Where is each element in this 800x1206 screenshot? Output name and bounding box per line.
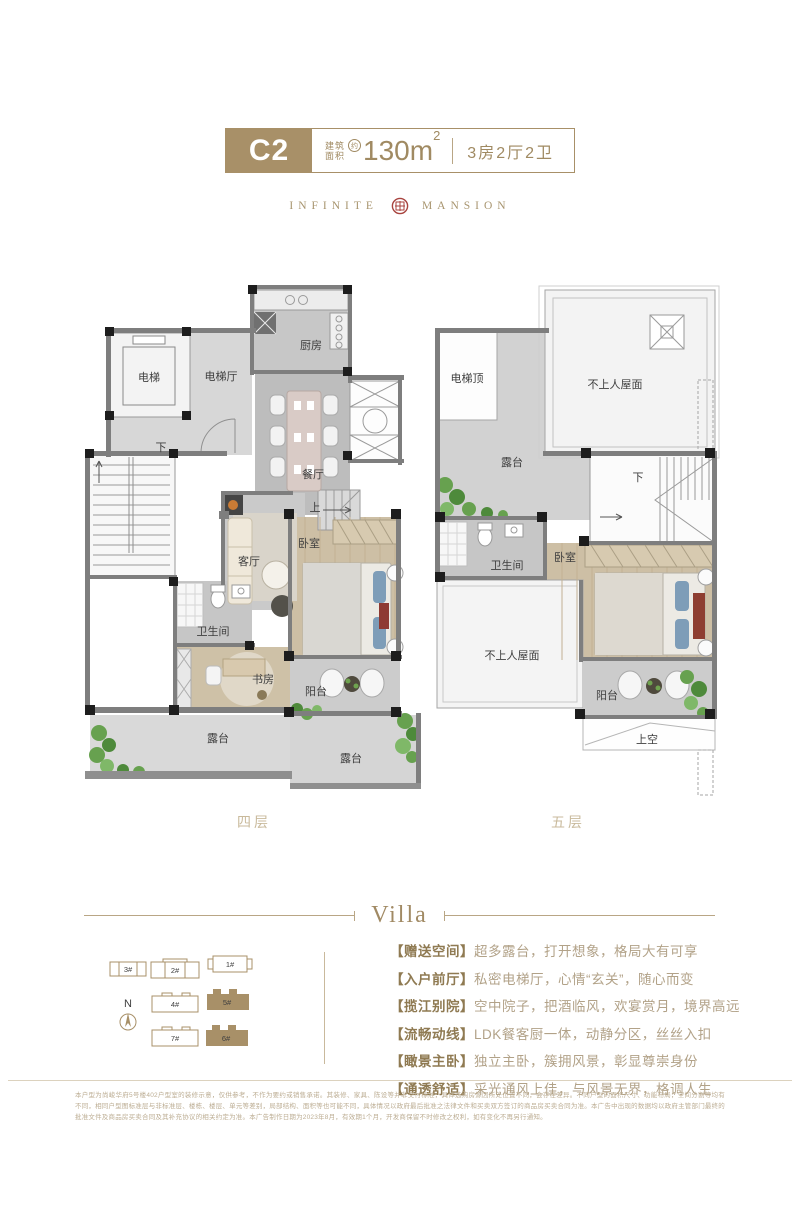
brand-left-word: INFINITE <box>289 200 378 212</box>
feature-desc: 空中院子，把酒临风，欢宴赏月，境界高远 <box>474 995 740 1015</box>
feature-item: 【赠送空间】超多露台，打开想象，格局大有可享 <box>390 940 690 960</box>
feature-desc: 超多露台，打开想象，格局大有可享 <box>474 940 698 960</box>
caption-fourth-floor: 四层 <box>224 812 284 832</box>
building-4-label: 4# <box>171 1000 180 1009</box>
feature-label: 【揽江别院】 <box>390 995 474 1015</box>
room-label-balcony: 阳台 <box>305 684 327 698</box>
room-label-terrace-5f: 露台 <box>501 455 523 469</box>
elevator-door <box>133 336 165 344</box>
flyer-page: C2 建筑 面积 约 130m2 3房2厅2卫 INFINITE MANSION <box>0 0 800 1206</box>
room-label-terrace-right: 露台 <box>340 751 362 765</box>
villa-heading: Villa <box>84 902 715 929</box>
room-label-roof-lower: 不上人屋面 <box>485 649 540 662</box>
stair-down-label: 下 <box>156 442 167 454</box>
stair-up-label: 上 <box>310 501 321 514</box>
building-3-label: 3# <box>124 965 133 974</box>
feature-item: 【瞰景主卧】独立主卧，簇拥风景，彰显尊崇身份 <box>390 1050 690 1070</box>
room-label-roof-upper: 不上人屋面 <box>588 378 643 391</box>
kitchen-counter <box>254 290 348 310</box>
stair-down-label-5f: 下 <box>633 472 644 484</box>
bed-5f-blanket <box>595 573 663 655</box>
room-label-bath: 卫生间 <box>197 624 230 638</box>
building-1-label: 1# <box>226 960 235 969</box>
pillow-5f <box>675 619 689 649</box>
unit-info: 建筑 面积 约 130m2 3房2厅2卫 <box>312 129 574 172</box>
dashed-annex <box>698 750 713 795</box>
compass-needle <box>125 1013 131 1027</box>
room-label-dining: 餐厅 <box>302 467 324 481</box>
area-value: 130m2 <box>363 135 440 167</box>
room-label-bath-5f: 卫生间 <box>491 558 524 572</box>
room-roof-lower <box>437 580 583 708</box>
feature-desc: LDK餐客厨一体，动静分区，丝丝入扣 <box>474 1023 712 1043</box>
feature-desc: 独立主卧，簇拥风景，彰显尊崇身份 <box>474 1050 698 1070</box>
floorplan-fourth-floor: 电梯 电梯厅 厨房 餐厅 下 上 客厅 卧室 卫生间 书房 阳台 露台 露台 <box>85 285 425 800</box>
north-compass: N <box>120 998 136 1030</box>
feature-item: 【流畅动线】LDK餐客厨一体，动静分区，丝丝入扣 <box>390 1023 690 1043</box>
area-label-top: 建筑 <box>325 141 345 151</box>
room-label-study: 书房 <box>252 673 274 686</box>
header-divider <box>452 138 453 164</box>
villa-line-right <box>445 915 715 916</box>
room-label-kitchen: 厨房 <box>300 339 322 352</box>
closet <box>333 520 398 544</box>
villa-title: Villa <box>355 902 444 929</box>
bottom-rule <box>8 1080 792 1081</box>
area-superscript: 2 <box>433 128 440 143</box>
room-label-elevator: 电梯 <box>138 371 160 384</box>
feature-label: 【流畅动线】 <box>390 1023 474 1043</box>
room-label-balcony-5f: 阳台 <box>596 688 618 702</box>
coffee-table <box>262 561 290 589</box>
feature-label: 【赠送空间】 <box>390 940 474 960</box>
room-label-void: 上空 <box>636 732 658 746</box>
seal-icon <box>391 197 409 215</box>
site-plan: N 3# 2# 1# 4# 5# 7# 6# <box>105 950 255 1055</box>
legal-disclaimer: 本户型为尚峻华府5号楼402户型室的装修示意，仅供参考，不作为要约或销售承诺。其… <box>75 1090 725 1123</box>
bed-blanket <box>303 563 361 655</box>
building-7-label: 7# <box>171 1034 180 1043</box>
feature-item: 【揽江别院】空中院子，把酒临风，欢宴赏月，境界高远 <box>390 995 690 1015</box>
feature-desc: 私密电梯厅，心情“玄关”，随心而变 <box>474 968 694 988</box>
north-label: N <box>124 998 132 1010</box>
bed-runner <box>379 603 389 629</box>
layout-text: 3房2厅2卫 <box>467 139 554 163</box>
unit-code-badge: C2 <box>226 129 312 172</box>
area-label: 建筑 面积 <box>325 141 345 161</box>
room-label-living: 客厅 <box>238 554 260 568</box>
villa-line-left <box>84 915 354 916</box>
section-divider <box>324 952 325 1064</box>
room-label-elevator-top: 电梯顶 <box>451 372 484 385</box>
nightstand-5f <box>698 569 714 585</box>
room-terrace-left <box>90 715 290 772</box>
pillow-5f <box>675 581 689 611</box>
feature-label: 【瞰景主卧】 <box>390 1050 474 1070</box>
brand-line: INFINITE MANSION <box>0 197 800 215</box>
room-label-terrace-left: 露台 <box>207 731 229 745</box>
building-5-label: 5# <box>223 998 232 1007</box>
pillow <box>373 571 386 603</box>
floorplan-fifth-floor: 电梯顶 不上人屋面 露台 下 卫生间 卧室 不上人屋面 阳台 上空 <box>435 285 720 800</box>
nightstand-5f <box>698 640 714 656</box>
unit-header: C2 建筑 面积 约 130m2 3房2厅2卫 <box>225 128 575 173</box>
building-2-label: 2# <box>171 966 180 975</box>
bed-bench <box>693 593 705 639</box>
building-6-label: 6# <box>222 1034 231 1043</box>
area-label-bottom: 面积 <box>325 151 345 161</box>
room-label-bedroom-5f: 卧室 <box>554 550 576 564</box>
bay-window <box>350 381 400 461</box>
room-roof-upper <box>545 290 715 455</box>
approx-mark: 约 <box>348 139 361 152</box>
room-label-bedroom: 卧室 <box>298 536 320 550</box>
closet-5f <box>585 545 715 567</box>
caption-fifth-floor: 五层 <box>538 812 598 832</box>
room-label-elevator-hall: 电梯厅 <box>205 370 238 383</box>
brand-right-word: MANSION <box>422 200 511 212</box>
feature-item: 【入户前厅】私密电梯厅，心情“玄关”，随心而变 <box>390 968 690 988</box>
feature-label: 【入户前厅】 <box>390 968 474 988</box>
